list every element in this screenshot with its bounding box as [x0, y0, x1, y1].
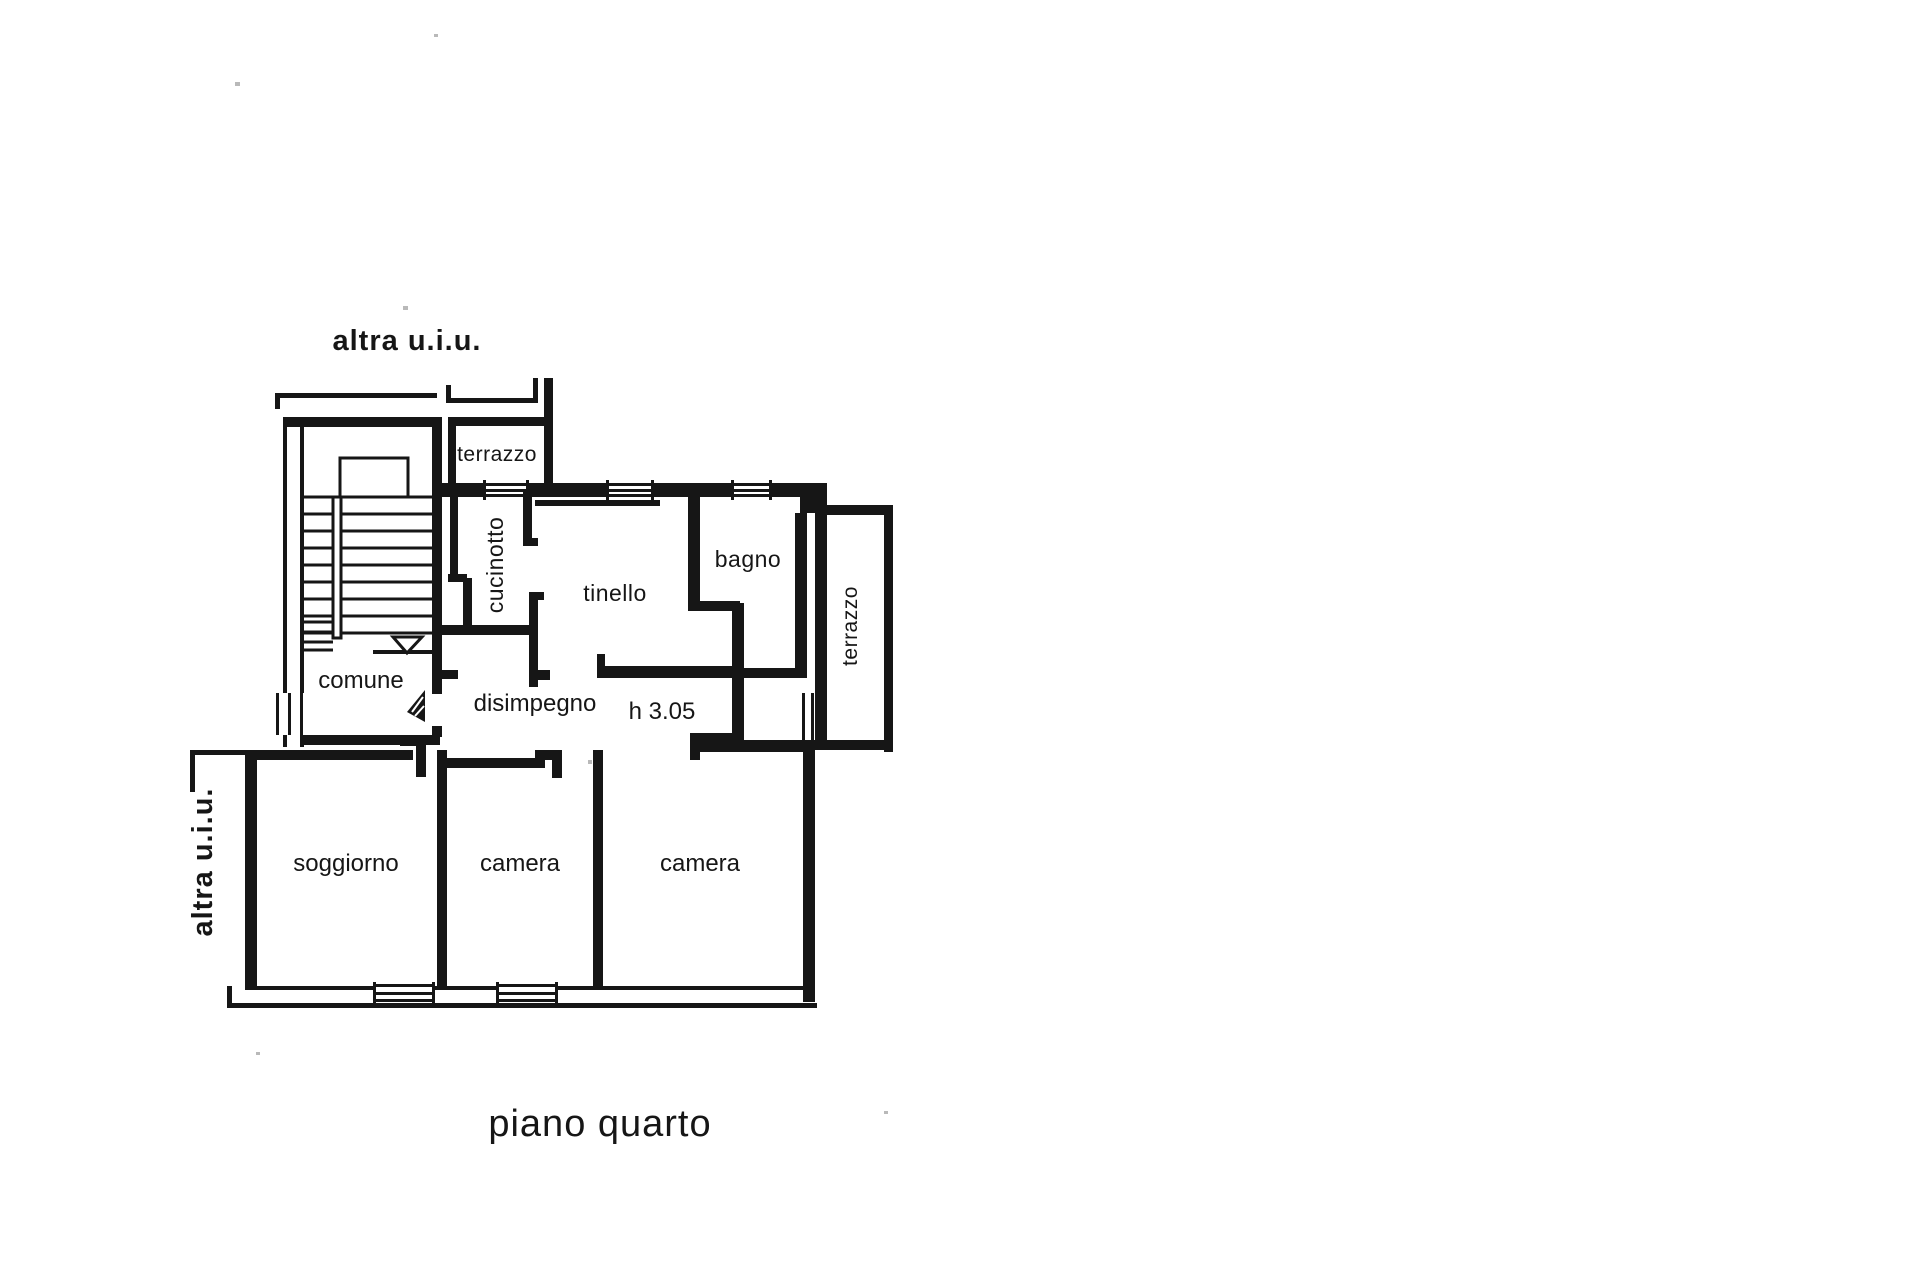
neighbor-boundary-top [275, 378, 538, 409]
window-cucinotto [483, 480, 529, 500]
room-label-cucinotto: cucinotto [482, 517, 508, 614]
entrance-door-icon [407, 690, 425, 722]
ceiling-height-note: h 3.05 [629, 698, 696, 725]
terrazzo-door-connector [802, 693, 814, 740]
window-tinello [606, 480, 654, 500]
plan-caption: piano quarto [488, 1103, 711, 1145]
party-wall [544, 378, 553, 488]
room-label-tinello: tinello [583, 580, 647, 606]
comune-room [303, 690, 440, 745]
floor-plan-svg: altra u.i.u. altra u.i.u. terrazzo cucin… [0, 0, 1920, 1280]
scanned-page: altra u.i.u. altra u.i.u. terrazzo cucin… [0, 0, 1920, 1280]
room-label-camera-1: camera [480, 850, 561, 877]
top-exterior-wall [442, 480, 827, 513]
room-label-bagno: bagno [715, 546, 781, 572]
corridor-walls [597, 654, 744, 678]
room-label-terrazzo-right: terrazzo [839, 586, 862, 666]
stair-treads [304, 497, 432, 650]
window-camera1 [496, 982, 558, 1004]
room-label-comune: comune [318, 667, 403, 694]
neighbor-top-label: altra u.i.u. [333, 325, 482, 357]
neighbor-boundary-left [190, 750, 253, 792]
room-label-disimpegno: disimpegno [474, 690, 597, 717]
window-soggiorno [373, 982, 435, 1004]
bottom-exterior-wall [227, 982, 817, 1008]
stairwell [274, 417, 458, 747]
room-label-camera-2: camera [660, 850, 741, 877]
room-label-soggiorno: soggiorno [293, 850, 398, 877]
neighbor-left-label: altra u.i.u. [187, 788, 219, 937]
bagno-walls [688, 497, 807, 743]
room-label-terrazzo-top: terrazzo [457, 443, 537, 466]
window-bagno [731, 480, 772, 500]
